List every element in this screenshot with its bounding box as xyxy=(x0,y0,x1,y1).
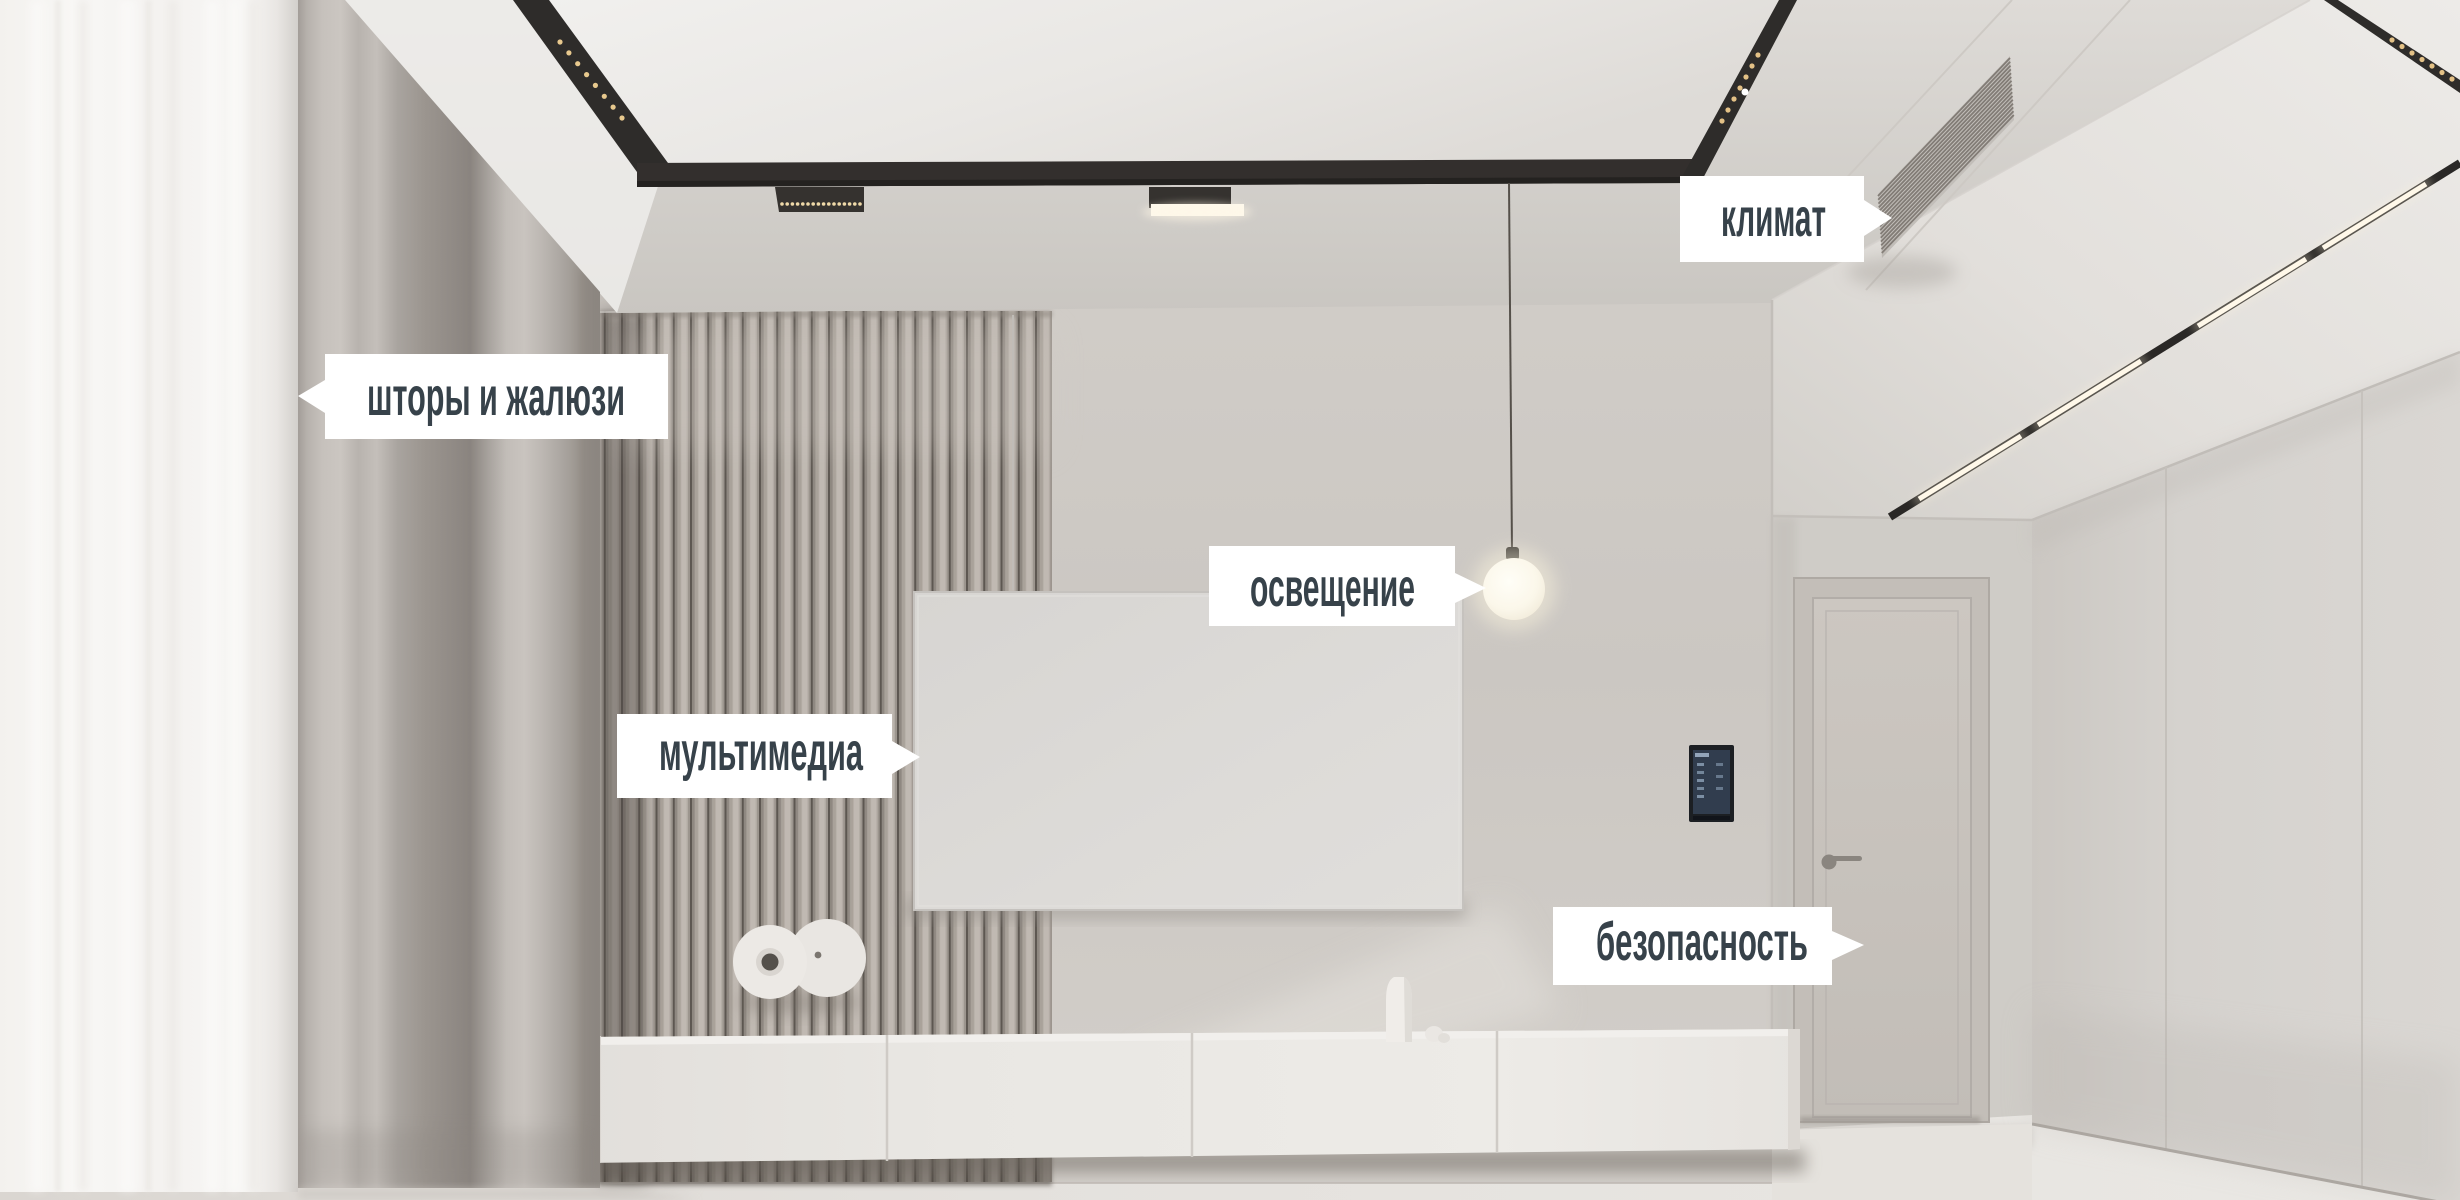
svg-text:шторы и жалюзи: шторы и жалюзи xyxy=(367,367,625,427)
svg-text:освещение: освещение xyxy=(1250,558,1415,618)
svg-text:безопасность: безопасность xyxy=(1596,912,1808,972)
svg-text:мультимедиа: мультимедиа xyxy=(659,722,864,782)
svg-text:климат: климат xyxy=(1721,188,1826,248)
